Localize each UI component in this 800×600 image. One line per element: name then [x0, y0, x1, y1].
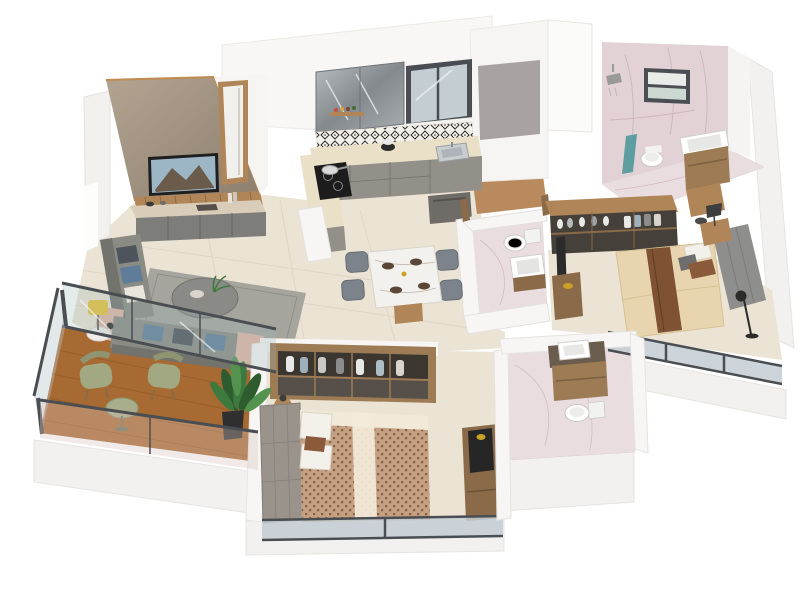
floor-plan-render [0, 0, 800, 600]
console-gold-bowl [477, 434, 486, 440]
bath-vanity [680, 130, 730, 190]
bedroom2-wardrobe [270, 343, 436, 403]
pendant-light [402, 272, 407, 277]
bed2-pillow-brown [304, 436, 326, 452]
bedroom2-window [262, 516, 503, 540]
trolley-cabinet [552, 272, 583, 320]
gas-hob [314, 162, 352, 200]
wc-basin [510, 254, 546, 292]
duct-tower [548, 20, 592, 132]
gold-bowl [563, 283, 573, 289]
sheet-stripe [352, 412, 377, 521]
bath-window-glass-top [648, 72, 686, 86]
kitchen-window [404, 59, 474, 131]
bed2-pillow-1 [300, 412, 332, 440]
bath-window-glass-bottom [648, 87, 686, 100]
cushion-blue [120, 265, 143, 284]
table-pedestal [394, 303, 423, 324]
dining-table-top [368, 246, 442, 308]
bath2-west-wall [494, 349, 511, 520]
floor-plan-svg [0, 0, 800, 600]
bathroom-east-wall [728, 46, 750, 158]
bed-2 [260, 403, 430, 523]
entrance-door [214, 74, 268, 194]
bath2-vanity [548, 340, 608, 401]
cushion-dark [116, 245, 139, 264]
headboard2 [260, 403, 303, 523]
pan [322, 166, 338, 175]
utility-grey-panel [478, 60, 540, 140]
west-wall-return [84, 182, 98, 252]
